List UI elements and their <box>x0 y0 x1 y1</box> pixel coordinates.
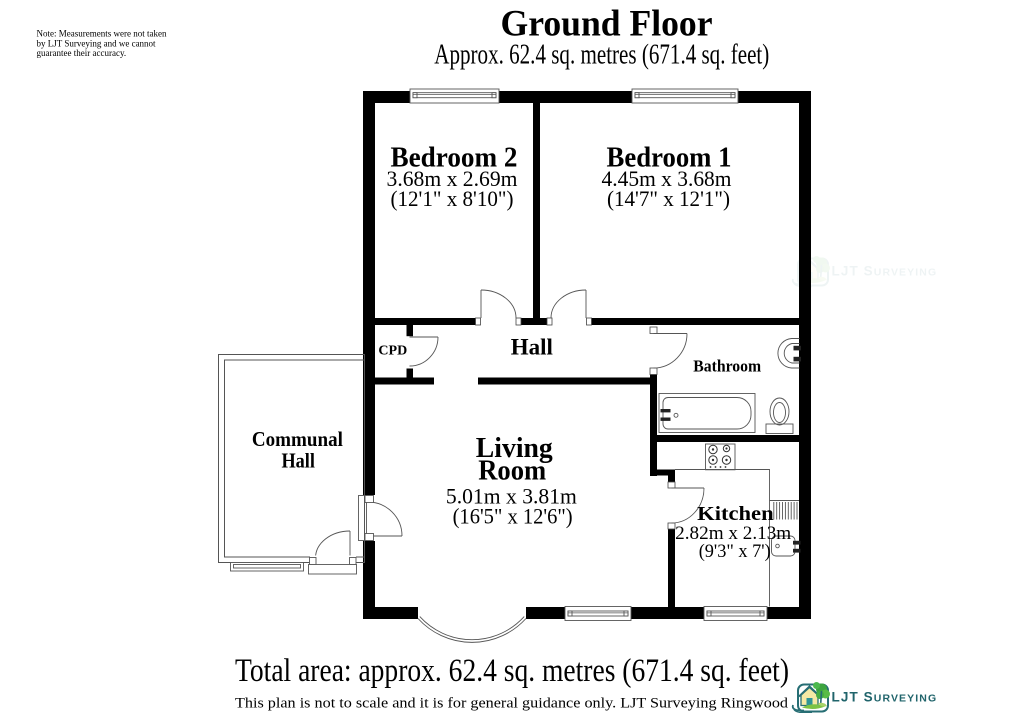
svg-text:Ground Floor: Ground Floor <box>501 4 713 45</box>
svg-text:Note: Measurements were not ta: Note: Measurements were not taken <box>37 29 167 39</box>
svg-text:Kitchen: Kitchen <box>697 503 774 525</box>
svg-text:Hall: Hall <box>281 449 315 473</box>
svg-text:Bathroom: Bathroom <box>693 357 761 376</box>
svg-text:(14'7" x 12'1"): (14'7" x 12'1") <box>607 186 730 211</box>
svg-text:2.82m x 2.13m: 2.82m x 2.13m <box>675 524 792 544</box>
svg-text:(12'1" x 8'10"): (12'1" x 8'10") <box>391 186 514 211</box>
svg-text:by LJT Surveying and we cannot: by LJT Surveying and we cannot <box>37 39 157 49</box>
svg-text:guarantee their accuracy.: guarantee their accuracy. <box>37 48 127 58</box>
svg-text:Communal: Communal <box>252 427 343 451</box>
svg-text:Hall: Hall <box>511 335 553 360</box>
svg-text:Room: Room <box>478 456 546 487</box>
svg-text:(9'3" x 7'): (9'3" x 7') <box>699 542 771 562</box>
svg-text:(16'5" x 12'6"): (16'5" x 12'6") <box>453 504 573 529</box>
svg-text:LJT SURVEYING: LJT SURVEYING <box>832 690 938 705</box>
svg-text:This plan is not to scale and: This plan is not to scale and it is for … <box>235 696 789 712</box>
svg-text:CPD: CPD <box>378 344 407 359</box>
svg-text:Approx. 62.4 sq. metres (671.4: Approx. 62.4 sq. metres (671.4 sq. feet) <box>434 40 769 71</box>
svg-text:Total area: approx. 62.4 sq. m: Total area: approx. 62.4 sq. metres (671… <box>235 653 789 689</box>
